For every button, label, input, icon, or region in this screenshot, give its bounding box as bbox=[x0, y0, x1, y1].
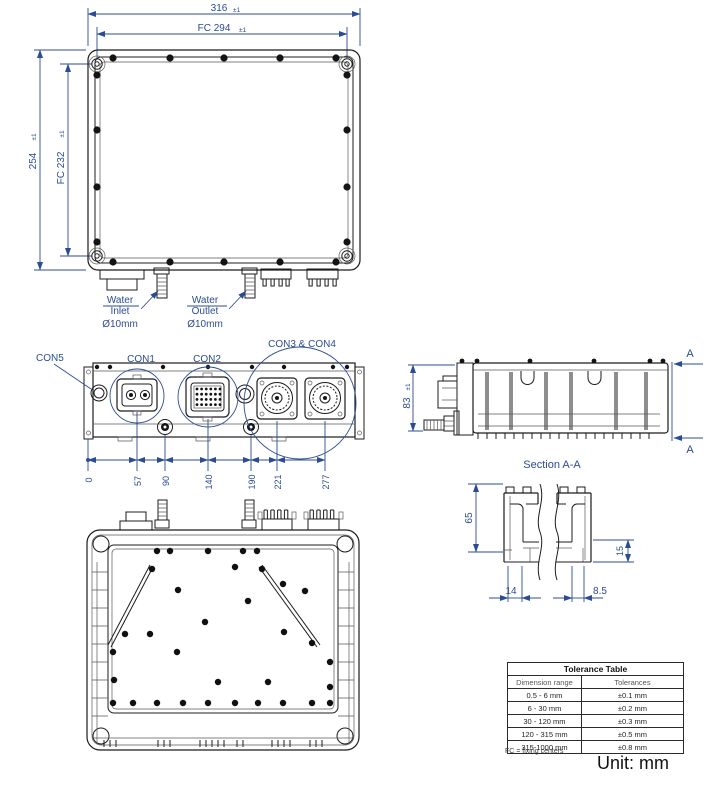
engineering-drawing: 316 ±1 FC 294 ±1 254 ±1 FC 232 ±1 bbox=[0, 0, 713, 789]
table-row: 30 - 120 mm ±0.3 mm bbox=[508, 715, 684, 728]
tolerance-cell: ±0.8 mm bbox=[581, 741, 683, 754]
side-view: 83 ±1 bbox=[402, 348, 703, 456]
tolerance-table-title-row: Tolerance Table bbox=[508, 663, 684, 676]
position-ladder: 0 57 90 140 190 221 277 bbox=[84, 412, 331, 490]
dim-side-height: 83 bbox=[402, 397, 413, 409]
pos-label-5: 221 bbox=[273, 474, 283, 489]
tolerance-table-title: Tolerance Table bbox=[508, 663, 684, 676]
tolerance-table: Tolerance Table Dimension range Toleranc… bbox=[507, 662, 684, 754]
side-view-body bbox=[424, 359, 668, 439]
section-dimensions: 65 15 14 8.5 bbox=[464, 484, 634, 602]
side-bottom-teeth bbox=[478, 433, 649, 439]
tolerance-cell: ±0.3 mm bbox=[581, 715, 683, 728]
connector-con4 bbox=[305, 378, 345, 419]
top-view-connectors bbox=[100, 268, 338, 298]
table-row: 6 - 30 mm ±0.2 mm bbox=[508, 702, 684, 715]
fixing-hole-top-right bbox=[339, 56, 355, 72]
tolerance-cell: ±0.1 mm bbox=[581, 689, 683, 702]
front-view: CON5 CON1 CON2 CON3 & CON4 0 57 90 140 1… bbox=[36, 339, 364, 490]
col-header-dimension-range: Dimension range bbox=[508, 676, 582, 689]
front-top-screws bbox=[95, 365, 349, 369]
table-row: 0.5 - 6 mm ±0.1 mm bbox=[508, 689, 684, 702]
pos-label-3: 140 bbox=[204, 474, 214, 489]
break-line-left bbox=[538, 484, 541, 580]
front-water-port-inlet bbox=[158, 420, 173, 435]
label-con2: CON2 bbox=[193, 354, 221, 365]
water-outlet-label-2: Outlet bbox=[192, 306, 219, 317]
dim-section-width: 14 bbox=[505, 586, 517, 597]
fixing-hole-top-left bbox=[89, 56, 105, 72]
top-view: 316 ±1 FC 294 ±1 254 ±1 FC 232 ±1 bbox=[28, 3, 360, 330]
tolerance-cell: ±0.5 mm bbox=[581, 728, 683, 741]
table-row: 120 - 315 mm ±0.5 mm bbox=[508, 728, 684, 741]
water-inlet-label-2: Inlet bbox=[111, 306, 130, 317]
unit-note: Unit: mm bbox=[597, 753, 669, 774]
pos-label-4: 190 bbox=[247, 474, 257, 489]
connector-con3 bbox=[257, 378, 297, 419]
dim-section-height: 65 bbox=[464, 512, 475, 524]
bottom-diagonal-ribs bbox=[108, 565, 320, 647]
dim-fc-width: FC 294 bbox=[198, 23, 231, 34]
front-water-port-outlet bbox=[244, 420, 259, 435]
fixing-hole-bottom-right bbox=[339, 248, 355, 264]
range-cell: 0.5 - 6 mm bbox=[508, 689, 582, 702]
toothed-connector-a bbox=[261, 269, 291, 286]
pos-label-2: 90 bbox=[161, 476, 171, 486]
bottom-stud-inlet bbox=[155, 500, 169, 528]
label-con1: CON1 bbox=[127, 354, 155, 365]
bottom-toothed-b bbox=[304, 510, 343, 530]
range-cell: 6 - 30 mm bbox=[508, 702, 582, 715]
fixing-hole-bottom-left bbox=[89, 248, 105, 264]
label-con3-con4: CON3 & CON4 bbox=[268, 339, 336, 350]
water-inlet-diameter: Ø10mm bbox=[102, 319, 138, 330]
section-view: Section A-A 65 15 bbox=[464, 459, 634, 602]
side-water-nipple bbox=[424, 411, 459, 435]
water-outlet-diameter: Ø10mm bbox=[187, 319, 223, 330]
con2-pins bbox=[196, 388, 222, 406]
dim-overall-height: 254 bbox=[28, 152, 39, 169]
bottom-edge-teeth bbox=[104, 740, 322, 747]
dim-section-foot: 15 bbox=[615, 546, 625, 556]
section-marker-top-label: A bbox=[686, 348, 694, 360]
water-outlet-label-1: Water bbox=[192, 295, 219, 306]
connector-con1 bbox=[117, 375, 157, 415]
tolerance-cell: ±0.2 mm bbox=[581, 702, 683, 715]
bottom-view-body bbox=[87, 530, 359, 750]
dim-side-height-tol: ±1 bbox=[405, 383, 412, 391]
bottom-view bbox=[87, 500, 359, 750]
col-header-tolerances: Tolerances bbox=[581, 676, 683, 689]
water-inlet-label-1: Water bbox=[107, 295, 134, 306]
dim-section-offset: 8.5 bbox=[593, 586, 607, 597]
bottom-hole-pattern bbox=[110, 548, 333, 706]
side-connector-block bbox=[438, 376, 457, 408]
dim-overall-width: 316 bbox=[211, 3, 228, 14]
dim-fc-height-tol: ±1 bbox=[59, 130, 66, 138]
pos-label-0: 0 bbox=[84, 477, 94, 482]
water-labels: Water Inlet Ø10mm Water Outlet Ø10mm bbox=[102, 291, 246, 330]
connector-con2 bbox=[186, 373, 229, 421]
section-marker-bottom-label: A bbox=[686, 444, 694, 456]
section-profile bbox=[504, 484, 591, 580]
section-title: Section A-A bbox=[523, 459, 581, 471]
pos-label-1: 57 bbox=[133, 476, 143, 486]
dim-overall-height-tol: ±1 bbox=[31, 133, 38, 141]
tolerance-table-header-row: Dimension range Tolerances bbox=[508, 676, 684, 689]
dim-fc-width-tol: ±1 bbox=[239, 27, 247, 34]
bottom-view-connectors bbox=[120, 500, 343, 530]
range-cell: 30 - 120 mm bbox=[508, 715, 582, 728]
dim-fc-height: FC 232 bbox=[56, 151, 67, 184]
dim-overall-width-tol: ±1 bbox=[233, 7, 241, 14]
pos-label-6: 277 bbox=[321, 474, 331, 489]
top-view-body bbox=[88, 50, 360, 270]
label-con5: CON5 bbox=[36, 353, 64, 364]
connector-block-top bbox=[100, 270, 144, 290]
bottom-stud-outlet bbox=[242, 500, 256, 528]
fc-note: FC = fixing centers bbox=[505, 748, 564, 755]
bottom-toothed-a bbox=[258, 510, 296, 530]
range-cell: 120 - 315 mm bbox=[508, 728, 582, 741]
section-cut-markers: A A bbox=[672, 348, 703, 456]
top-view-dimensions: 316 ±1 FC 294 ±1 254 ±1 FC 232 ±1 bbox=[28, 3, 360, 270]
toothed-connector-b bbox=[307, 269, 338, 286]
side-ribs bbox=[478, 371, 660, 430]
lid-screws bbox=[93, 54, 350, 265]
